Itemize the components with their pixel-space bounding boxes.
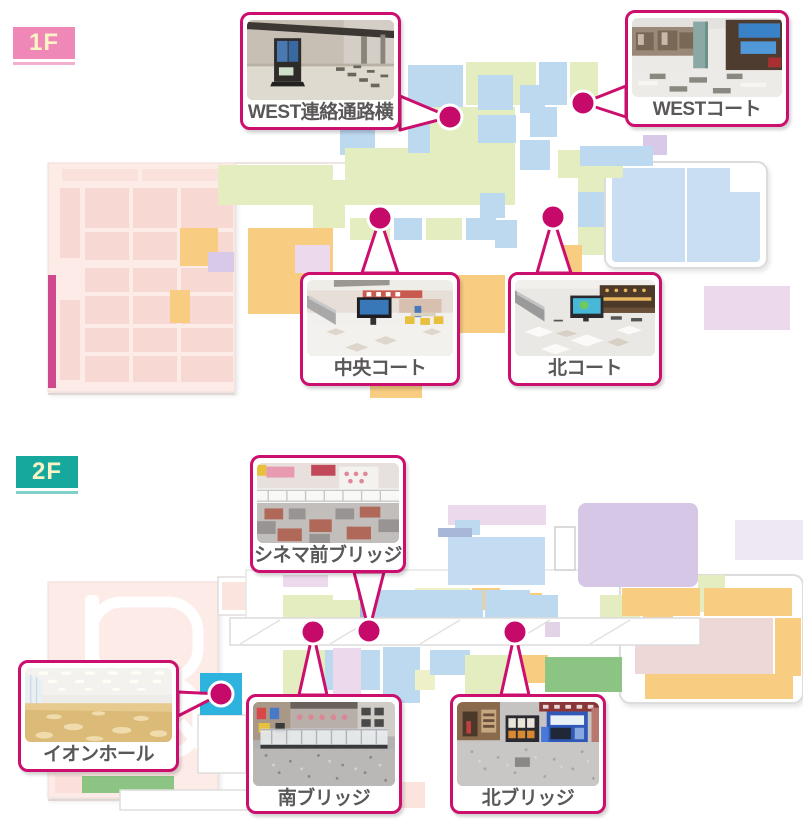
floor1-right-building (605, 162, 767, 268)
west-passage-label: WEST連絡通路横 (248, 100, 393, 125)
mall-floor-guide: 1F 2F WEST連絡通路横 (0, 0, 803, 828)
cinema-bridge-label: シネマ前ブリッジ (254, 543, 402, 568)
floor2-badge: 2F (16, 456, 78, 488)
callout-west-court: WESTコート (625, 10, 789, 127)
south-bridge-photo (253, 702, 395, 786)
floor2-map (30, 470, 803, 828)
west-passage-photo (247, 20, 394, 100)
central-court-label: 中央コート (334, 356, 427, 381)
callout-south-bridge: 南ブリッジ (246, 694, 402, 814)
west-court-label: WESTコート (653, 97, 761, 122)
floor1-badge: 1F (13, 27, 75, 59)
callout-aeon-hall: イオンホール (18, 660, 179, 772)
north-court-photo (515, 280, 655, 356)
callout-west-passage: WEST連絡通路横 (240, 12, 401, 130)
north-bridge-label: 北ブリッジ (482, 786, 575, 811)
floor2-badge-underline (16, 491, 78, 494)
callout-north-court: 北コート (508, 272, 662, 386)
cinema-bridge-photo (257, 463, 399, 543)
floor1-badge-underline (13, 62, 75, 65)
callout-north-bridge: 北ブリッジ (450, 694, 606, 814)
south-bridge-label: 南ブリッジ (278, 786, 371, 811)
central-court-photo (307, 280, 453, 356)
north-court-label: 北コート (548, 356, 622, 381)
west-court-photo (632, 18, 782, 97)
north-bridge-photo (457, 702, 599, 786)
callout-cinema-bridge: シネマ前ブリッジ (250, 455, 406, 573)
aeon-hall-photo (25, 668, 172, 742)
callout-central-court: 中央コート (300, 272, 460, 386)
aeon-hall-label: イオンホール (43, 742, 154, 767)
